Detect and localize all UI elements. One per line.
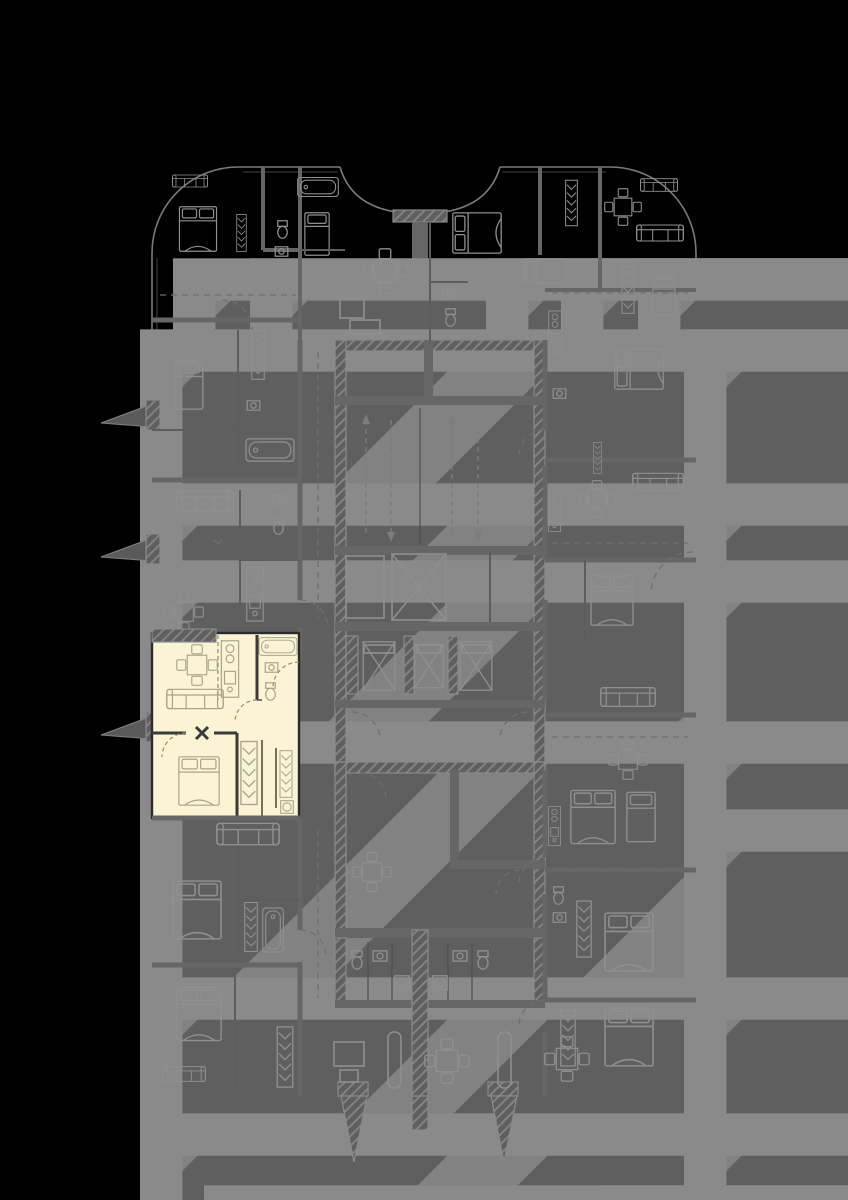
toilet-icon — [278, 221, 288, 238]
bed-icon — [453, 213, 501, 253]
wardrobe-icon — [566, 180, 578, 226]
sofa-icon — [641, 179, 678, 192]
floor-plan-drawing — [0, 0, 848, 1200]
highlighted-apartment[interactable] — [152, 629, 299, 818]
sofa-icon — [637, 225, 684, 241]
bed-icon — [305, 213, 329, 255]
apartment-floor[interactable] — [152, 633, 299, 818]
apartment-wall-block — [152, 629, 216, 642]
bed-icon — [179, 207, 216, 252]
bathtub-icon — [298, 178, 339, 197]
floor-plan-viewport — [0, 0, 848, 1200]
wardrobe-icon — [237, 215, 247, 252]
unit-top-bath[interactable] — [298, 178, 345, 256]
table-icon — [605, 189, 642, 226]
core-walls — [335, 340, 545, 770]
